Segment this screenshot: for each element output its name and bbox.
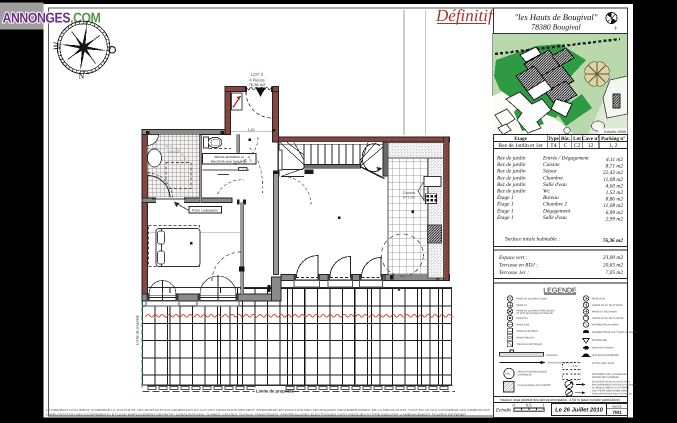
svg-text:GOUTTIERE DEMI RONDE AVEC: GOUTTIERE DEMI RONDE AVEC — [592, 390, 628, 393]
svg-text:Terrasse en RDJ :: Terrasse en RDJ : — [499, 262, 538, 268]
svg-text:PRISE TV: PRISE TV — [517, 304, 528, 307]
svg-text:SORTIE DE FIL EN ATTENTE: SORTIE DE FIL EN ATTENTE — [592, 304, 623, 307]
svg-text:PRISE TABLEAU: PRISE TABLEAU — [517, 337, 535, 340]
svg-text:Espace vert :: Espace vert : — [498, 255, 528, 261]
svg-text:Rez de jardin: Rez de jardin — [496, 182, 526, 188]
svg-text:LOT 2: LOT 2 — [251, 72, 264, 77]
svg-text:76,36 m2: 76,36 m2 — [249, 82, 266, 87]
svg-text:Étage 1: Étage 1 — [496, 214, 514, 221]
svg-text:ET APPLIQUE MURALE ETANCHE: ET APPLIQUE MURALE ETANCHE — [517, 312, 554, 315]
svg-text:DESCENTE D'EAU PLUVIALE AVEC: DESCENTE D'EAU PLUVIALE AVEC — [592, 380, 631, 383]
svg-text:APPLIQUE EXTERIEURE: APPLIQUE EXTERIEURE — [592, 354, 619, 357]
svg-text:Rez de jardin: Rez de jardin — [496, 175, 526, 181]
svg-text:Porte coulissante: Porte coulissante — [192, 208, 218, 212]
svg-text:RETOMBEE SUR LA TERRASSE: RETOMBEE SUR LA TERRASSE — [592, 373, 627, 376]
svg-text:Terrasse 1er :: Terrasse 1er : — [499, 270, 529, 276]
svg-text:Étage 1: Étage 1 — [496, 207, 514, 214]
svg-text:4,60 m2: 4,60 m2 — [606, 183, 624, 189]
svg-text:L'IMPLANTATION DES EQUIPEMENTS: L'IMPLANTATION DES EQUIPEMENTS ET LEUR E… — [46, 413, 466, 417]
svg-text:COTES CIBLE SEUIL: COTES CIBLE SEUIL — [592, 362, 615, 365]
svg-text:"les Hauts de Bougival": "les Hauts de Bougival" — [515, 12, 598, 22]
svg-text:RACCORDEMENT DES EAUX PLUVIALE: RACCORDEMENT DES EAUX PLUVIALES — [592, 383, 637, 386]
svg-text:INTERRUPTEUR SIMPLE: INTERRUPTEUR SIMPLE — [592, 324, 620, 327]
svg-text:1,20: 1,20 — [248, 128, 255, 132]
svg-text:Dégagement: Dégagement — [542, 208, 571, 214]
svg-text:Rez de jardin: Rez de jardin — [496, 189, 526, 195]
svg-text:Echelle: Echelle — [496, 408, 512, 413]
svg-text:76,36 m2: 76,36 m2 — [603, 238, 624, 244]
svg-text:4,60 m2: 4,60 m2 — [167, 150, 179, 154]
svg-text:Type: Type — [548, 136, 560, 142]
svg-text:1,52 m2: 1,52 m2 — [606, 190, 624, 196]
svg-text:Chambre 2: Chambre 2 — [543, 202, 567, 208]
svg-text:23,00 m2: 23,00 m2 — [603, 255, 623, 261]
svg-text:PRISE EN ATTENTE: PRISE EN ATTENTE — [517, 330, 539, 333]
svg-text:22,42 m2: 22,42 m2 — [603, 170, 623, 176]
svg-text:PRISE TEL: PRISE TEL — [517, 317, 529, 320]
svg-text:Bât.: Bât. — [561, 136, 571, 142]
svg-text:Entrée / Dégagement: Entrée / Dégagement — [542, 156, 589, 162]
svg-text:PRISE RJ45: PRISE RJ45 — [592, 298, 606, 301]
svg-text:SENS D'ECOULEMENT: SENS D'ECOULEMENT — [548, 362, 574, 365]
svg-text:INFERIEURE COMPRISE: INFERIEURE COMPRISE — [592, 376, 619, 379]
svg-text:78380 Bougival: 78380 Bougival — [531, 23, 581, 32]
svg-text:+ 2,50: + 2,50 — [571, 365, 579, 368]
svg-text:8,71 m2: 8,71 m2 — [403, 196, 415, 200]
svg-text:6,99 m2: 6,99 m2 — [606, 210, 624, 216]
svg-text:7M1: 7M1 — [612, 410, 622, 416]
svg-text:Étage 1: Étage 1 — [496, 201, 514, 208]
svg-text:SORTIE DE FIL EN PLAFOND: SORTIE DE FIL EN PLAFOND — [592, 317, 624, 320]
svg-text:PRISE RJ45: PRISE RJ45 — [517, 324, 531, 327]
svg-text:Wc: Wc — [543, 189, 550, 195]
svg-text:PRISE DE COURANT SPECIALISEE: PRISE DE COURANT SPECIALISEE — [517, 309, 556, 312]
svg-text:20,65 m2: 20,65 m2 — [603, 262, 623, 268]
svg-text:8,71 m2: 8,71 m2 — [606, 164, 624, 170]
svg-text:0,5: 0,5 — [526, 403, 532, 408]
svg-text:CONTROLEE: CONTROLEE — [518, 373, 533, 376]
svg-text:Rez de jardin: Rez de jardin — [496, 156, 526, 162]
svg-text:Rez de jardin: Rez de jardin — [496, 169, 526, 175]
svg-text:EVACUATION DES EAUX PLUVIALES: EVACUATION DES EAUX PLUVIALES — [592, 393, 632, 396]
svg-text:2,99 m2: 2,99 m2 — [606, 216, 624, 222]
svg-text:PLAN QUADRILLAGE COMPTE: PLAN QUADRILLAGE COMPTE — [518, 384, 552, 387]
svg-text:électricité pour lave linge: électricité pour lave linge — [211, 159, 247, 163]
svg-text:Hauteur sous plafond des pièce: Hauteur sous plafond des pièces principa… — [500, 398, 620, 402]
svg-text:Séjour: Séjour — [543, 169, 558, 175]
svg-text:Echelle 1/500: Echelle 1/500 — [604, 130, 626, 134]
svg-text:POINT DE PUISAGE: POINT DE PUISAGE — [592, 346, 614, 349]
svg-text:4,11 m2: 4,11 m2 — [606, 157, 623, 163]
svg-text:INTERRUPTEUR VA ET VIENT ALLUM: INTERRUPTEUR VA ET VIENT ALLUMAGE — [592, 331, 638, 334]
svg-text:INTERPHONE: INTERPHONE — [592, 339, 608, 342]
svg-text:Chambre: Chambre — [543, 175, 563, 181]
svg-text:11,08 m2: 11,08 m2 — [603, 177, 623, 183]
svg-text:Limite de propriété: Limite de propriété — [256, 388, 294, 393]
svg-text:Surface totale habitable :: Surface totale habitable : — [505, 237, 560, 243]
svg-text:VMC: VMC — [505, 373, 510, 376]
svg-text:CANIVEAU: CANIVEAU — [546, 354, 558, 357]
svg-text:Etage: Etage — [514, 136, 527, 142]
svg-text:AU RESEAU PREVU A CET EFFET: AU RESEAU PREVU A CET EFFET — [592, 386, 629, 389]
svg-text:Le 26 Juillet 2010: Le 26 Juillet 2010 — [555, 407, 603, 414]
svg-text:Lot: Lot — [573, 136, 581, 142]
svg-text:PRISE DE TELEVISION: PRISE DE TELEVISION — [592, 311, 617, 314]
svg-text:Étage 1: Étage 1 — [496, 194, 514, 201]
svg-text:Parking n°: Parking n° — [601, 136, 625, 142]
svg-text:Salle d'eau: Salle d'eau — [543, 182, 567, 188]
svg-text:Salle d'eau: Salle d'eau — [543, 215, 567, 221]
svg-text:11,08 m2: 11,08 m2 — [603, 203, 623, 209]
svg-text:Cave n°: Cave n° — [582, 136, 600, 142]
svg-text:Cuisine: Cuisine — [543, 162, 560, 168]
svg-text:Limite de propriété: Limite de propriété — [136, 315, 140, 345]
svg-text:Rez de jardin: Rez de jardin — [496, 162, 526, 168]
svg-text:PRISE DE COURANT 10/16A: PRISE DE COURANT 10/16A — [517, 298, 548, 301]
svg-text:INDICE: INDICE — [612, 404, 622, 408]
svg-text:Cuisine: Cuisine — [403, 191, 416, 195]
svg-text:8,86 m2: 8,86 m2 — [606, 197, 624, 203]
svg-text:Bureau: Bureau — [543, 195, 559, 201]
svg-text:N: N — [79, 72, 85, 81]
svg-text:VENTILATION MECANIQUE: VENTILATION MECANIQUE — [518, 370, 548, 373]
svg-text:TABLEAU ELECTRIQUE: TABLEAU ELECTRIQUE — [517, 343, 543, 346]
svg-text:Définitif: Définitif — [435, 6, 495, 25]
svg-text:2,50: 2,50 — [249, 158, 253, 165]
svg-text:LEGENDE: LEGENDE — [543, 288, 577, 295]
svg-text:LE PRESENT DOCUMENT ASSEMBLE L: LE PRESENT DOCUMENT ASSEMBLE LA JOUXTE E… — [46, 408, 490, 412]
svg-text:7,05 m2: 7,05 m2 — [606, 270, 624, 276]
